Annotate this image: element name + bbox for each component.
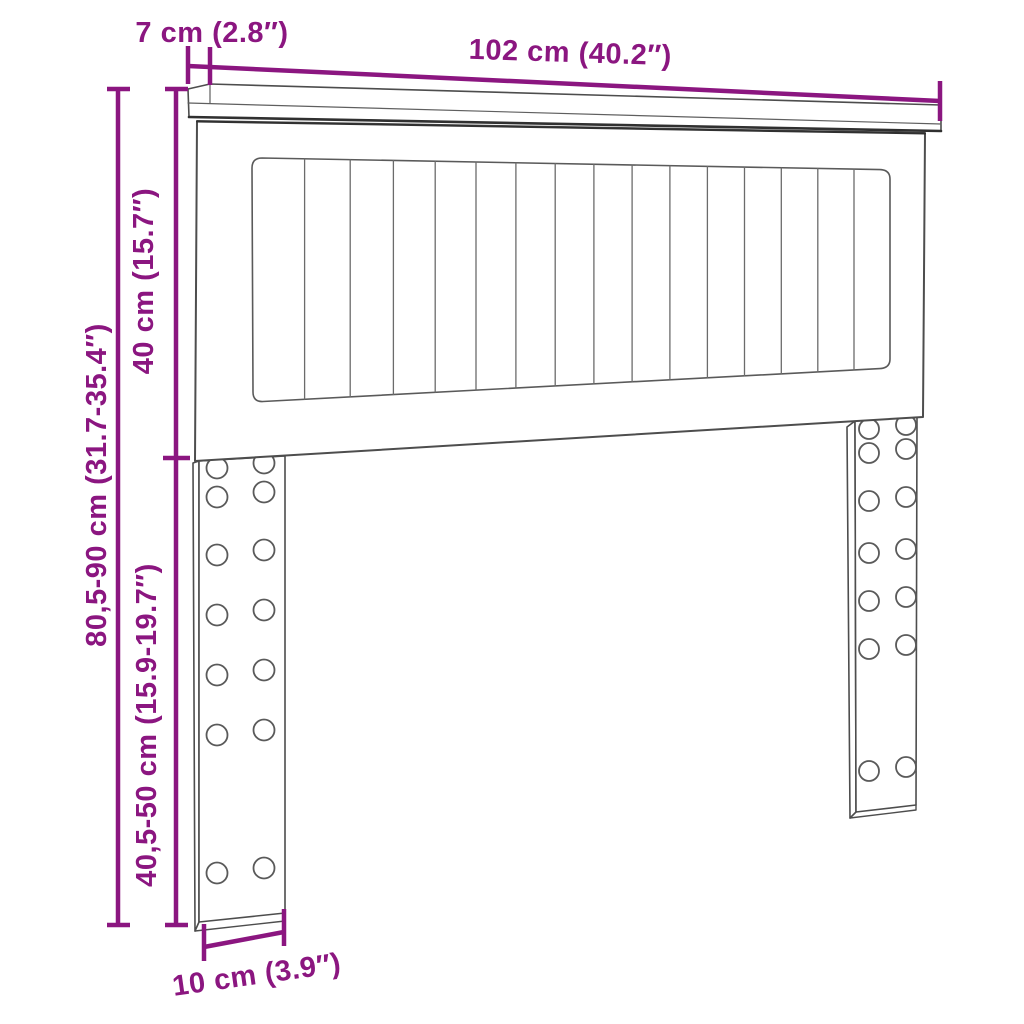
dimension-panel-leg-height xyxy=(163,89,190,925)
label-total-height: 80,5-90 cm (31.7-35.4″) xyxy=(81,323,113,647)
left-leg-side-face xyxy=(193,461,199,931)
leg-bolt-hole xyxy=(896,757,916,777)
leg-bolt-hole xyxy=(896,635,916,655)
label-panel-height: 40 cm (15.7″) xyxy=(128,188,160,374)
left-leg xyxy=(193,453,285,932)
leg-bolt-hole xyxy=(859,761,879,781)
leg-bolt-hole xyxy=(254,660,275,681)
diagram-canvas: 7 cm (2.8″) 102 cm (40.2″) 40 cm (15.7″)… xyxy=(0,0,1024,1024)
left-leg-front-face xyxy=(199,456,285,922)
leg-bolt-hole xyxy=(859,419,879,439)
label-leg-height: 40,5-50 cm (15.9-19.7″) xyxy=(131,563,163,887)
slat-panel xyxy=(252,158,890,402)
leg-bolt-hole xyxy=(896,487,916,507)
right-leg xyxy=(847,415,917,818)
leg-bolt-hole xyxy=(207,487,228,508)
right-leg-front-face xyxy=(855,417,917,812)
leg-bolt-hole xyxy=(254,858,275,879)
leg-bolt-hole xyxy=(859,591,879,611)
leg-bolt-hole xyxy=(207,665,228,686)
leg-bolt-hole xyxy=(207,545,228,566)
leg-bolt-hole xyxy=(896,439,916,459)
leg-bolt-hole xyxy=(859,543,879,563)
leg-bolt-hole xyxy=(859,443,879,463)
leg-bolt-hole xyxy=(859,491,879,511)
headboard-drawing xyxy=(188,84,941,931)
leg-bolt-hole xyxy=(207,863,228,884)
label-leg-depth: 10 cm (3.9″) xyxy=(170,947,343,1002)
leg-bolt-hole xyxy=(207,605,228,626)
leg-bolt-hole xyxy=(254,720,275,741)
leg-bolt-hole xyxy=(254,600,275,621)
leg-bolt-hole xyxy=(207,725,228,746)
leg-bolt-hole xyxy=(859,639,879,659)
leg-bolt-hole xyxy=(254,482,275,503)
headboard-dimension-diagram: 7 cm (2.8″) 102 cm (40.2″) 40 cm (15.7″)… xyxy=(0,0,1024,1024)
leg-bolt-hole xyxy=(254,540,275,561)
label-width: 102 cm (40.2″) xyxy=(468,34,672,72)
label-shelf-depth: 7 cm (2.8″) xyxy=(135,17,288,49)
leg-bolt-hole xyxy=(896,539,916,559)
leg-bolt-hole xyxy=(896,587,916,607)
